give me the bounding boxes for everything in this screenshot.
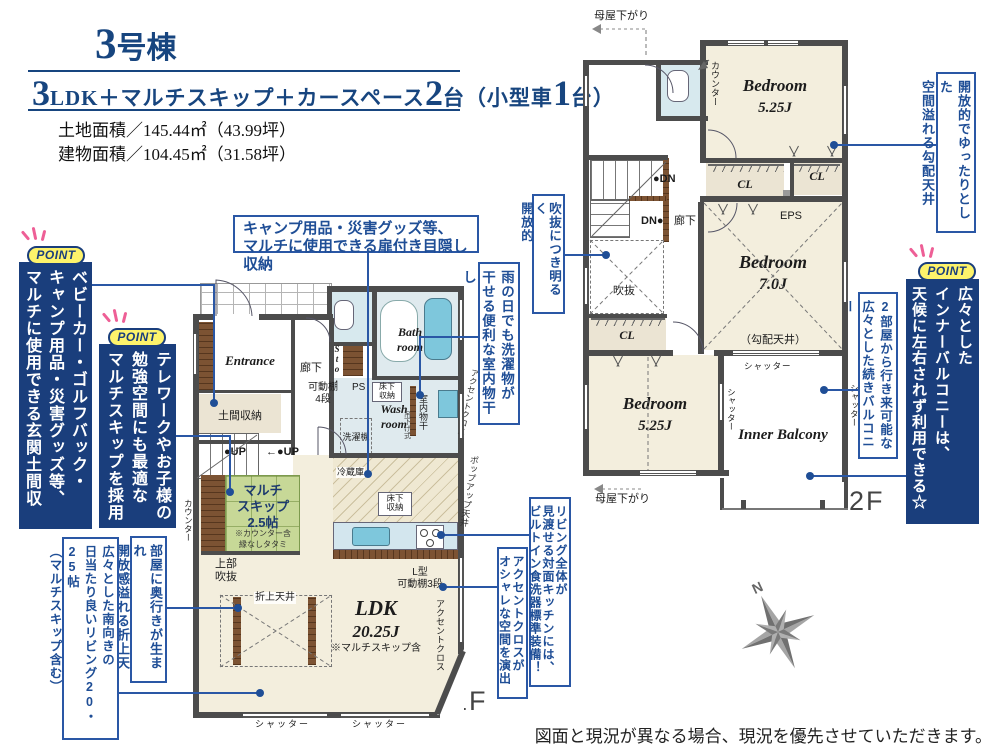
wall [193,390,293,393]
leader-line [824,389,858,391]
wall [656,116,708,121]
hanger-mark [610,356,626,367]
emphasis-rays-icon [22,226,48,246]
label-bedroom3-size: 5.25J [630,417,680,435]
label-cl1: CL [730,177,760,192]
emphasis-rays-icon [910,243,936,263]
label-fridge: 冷蔵庫 [336,467,365,478]
storage-shelf [343,344,363,376]
kitchen-sink [352,527,390,546]
balcony-wall [844,478,848,510]
window [459,558,464,642]
building-number: 3号棟 [95,20,177,69]
multiskip-steps [201,475,225,553]
label-storage: Sto. [331,344,342,384]
leader-line [564,254,606,256]
window [843,262,848,302]
leader-line [441,534,530,536]
balcony-post [820,500,825,509]
label-shutter: シャッター [744,361,792,371]
leader-dot [820,386,828,394]
point-badge: POINT [918,262,976,281]
balcony-wall [720,478,724,510]
leader-line [119,692,260,694]
closet-rail [708,164,784,172]
label-counter-2f: カウンター [709,55,720,111]
wall [656,60,661,118]
leader-line [443,586,498,588]
label-ldk-size: 20.25J [340,622,412,643]
ceiling-post [308,597,316,665]
wall [700,158,848,163]
label-void: 吹抜 [613,285,635,298]
leader-dot [364,470,372,478]
callout-indoor-drying: 雨の日でも洗濯物が 干せる便利な室内物干し [478,262,520,425]
leader-dot [210,399,218,407]
wall [329,453,460,458]
wall [201,551,300,555]
point-box-balcony: 広々とした インナーバルコニーは、 天候に左右されず利用できる☆ [906,279,979,524]
leader-line [213,284,215,403]
room-label-bedroom3: Bedroom [620,394,690,415]
layout-part: 2 [425,72,443,114]
label-movable-shelf: 可動棚 4段 [299,382,347,406]
wall [583,155,668,160]
hanger-mark [786,146,802,157]
leader-dot [234,604,242,612]
wall [700,40,706,162]
label-hallway-1f: 廊下 [293,362,329,375]
label-doma-storage: 土間収納 [210,410,270,423]
emphasis-rays-icon [103,308,129,328]
label-underfloor-kitchen: 床下 収納 [381,494,409,513]
leader-line [810,475,906,477]
disclaimer: 図面と現況が異なる場合、現況を優先させていただきます。 [535,722,992,747]
hanger-mark [745,204,761,215]
callout-coffered: 部屋に奥行きが生まれ 開放感溢れる折上天井 [130,536,167,683]
label-open-above: 上部 吹抜 [208,558,244,585]
window [640,470,696,476]
window [719,384,724,420]
window [733,350,819,356]
label-multiskip: マルチ スキップ 2.5帖 [227,483,299,531]
label-sloped-ceiling: （勾配天井） [736,334,810,347]
point-box-doma: ベビーカー・ゴルフバック・ キャンプ用品・災害グッズ等、 マルチに使用できる玄関… [19,262,92,529]
room-label-bath: Bath room [382,325,438,354]
closet-rail [591,318,665,326]
wall [193,314,199,718]
label-counter-1f: カウンター [183,490,193,550]
window [728,40,764,46]
window [341,713,429,718]
label-multiskip-note2: 縁なしタタミ [228,540,298,550]
wall [700,196,848,202]
room-label-entrance: Entrance [218,353,282,369]
window [193,334,198,374]
callout-void-bright: 吹抜につき明るく 開放的 [532,194,565,314]
shoe-cabinet [198,322,213,390]
hanger-mark [715,204,731,215]
wall [291,318,295,455]
leader-dot [830,141,838,149]
label-hallway-2f: 廊下 [674,215,696,228]
label-moya-top: 母屋下がり [594,10,649,23]
closet-rail [794,164,840,172]
callout-living: 広々とした南向きの 日当たり良いリビング20・25帖 （マルチスキップ含む） [62,537,119,740]
toilet-bowl-1f [334,300,354,330]
layout-part: LDK＋マルチスキップ＋カースペース [50,82,425,112]
callout-tsuzuki-balcony: 2部屋から行き来可能な 広々とした続きバルコニー [858,292,898,459]
label-cl3: CL [612,328,642,343]
leader-line [91,284,214,286]
compass-north-label: N [749,578,765,597]
wall [193,440,295,444]
callout-kitchen: リビング全体が 見渡せる対面キッチンには、 ビルトイン食洗器標準装備！ [529,497,571,687]
land-area: 土地面積／145.44㎡（43.99坪） [58,116,296,141]
leader-dot [256,689,264,697]
divider-bottom [28,109,460,111]
label-eps: EPS [780,210,802,223]
label-bedroom1-size: 5.25J [748,99,802,117]
leader-line [176,435,231,437]
balcony-post [741,500,746,509]
point-badge: POINT [27,246,85,265]
layout-part: 3 [32,72,50,114]
stairs-2f-lower [590,200,630,238]
counter-front-wall [333,550,458,559]
floor2-label: 2F [849,486,885,517]
leader-dot [416,391,424,399]
toilet-bowl-2f [667,70,689,102]
label-accent-cloth-ldk: アクセントクロス [434,598,445,672]
layout-part: 1 [553,72,571,114]
leader-line [419,336,480,338]
window [584,385,589,429]
window [459,300,464,340]
room-label-bedroom2: Bedroom [738,252,808,274]
label-multiskip-note1: ※カウンター含 [228,529,298,539]
leader-dot [806,472,814,480]
window [459,394,464,438]
leader-dot [602,251,610,259]
window [243,713,327,718]
window [843,86,848,134]
window [768,40,798,46]
building-area: 建物面積／104.45㎡（31.58坪） [58,140,296,165]
label-coffered-ceiling: 折上天井 [254,592,296,604]
callout-accent-cloth: アクセントクロスが オシャレな空間を演出 [497,547,528,699]
wash-basin [438,390,458,418]
label-underfloor-wash: 床下 収納 [374,383,400,401]
window [584,268,589,304]
callout-hidden-storage: キャンプ用品・災害グッズ等、 マルチに使用できる扉付き目隠し収納 [233,215,479,253]
compass-icon: N [718,572,838,692]
callout-sloped-ceiling: 開放的でゆったりとした 空間溢れる勾配天井 [936,72,976,233]
wall [327,286,464,292]
leader-line [367,252,369,473]
leader-line [229,435,231,491]
porch-tiles [200,283,332,318]
label-up: ●UP [224,446,246,459]
point-box-multiskip: テレワークやお子様の 勉強空間にも最適な マルチスキップを採用 [99,344,176,528]
room-label-ldk: LDK [340,596,412,622]
room-label-wash: Wash room [366,402,422,431]
label-drying-type: 吊下げ式 [402,408,411,442]
leader-line [166,607,238,609]
window [584,76,589,106]
label-shutter: シャッター [726,383,736,435]
wall [698,202,704,354]
label-moya-bottom: 母屋下がり [595,493,650,506]
leader-dot [439,583,447,591]
label-dn: DN● [641,215,664,228]
room-label-inner-balcony: Inner Balcony [730,426,836,444]
wall [583,60,708,65]
leader-line [419,336,421,393]
label-shutter: シャッター [255,719,310,730]
label-shutter: シャッター [352,719,407,730]
label-ldk-note: ※マルチスキップ含 [330,643,422,655]
void-area [590,240,664,314]
label-bedroom2-size: 7.0J [750,275,796,295]
stair-rail [629,196,667,201]
point-badge: POINT [108,328,166,347]
layout-part: 台（小型車 [443,82,553,112]
hanger-mark [648,356,664,367]
wall [372,286,377,380]
leader-dot [226,488,234,496]
floorplan-flyer: 3号棟 3 LDK＋マルチスキップ＋カースペース 2 台（小型車 1 台） 土地… [0,0,1000,751]
layout-summary: 3 LDK＋マルチスキップ＋カースペース 2 台（小型車 1 台） [32,72,615,114]
label-dn: ●DN [653,173,676,186]
room-label-bedroom1: Bedroom [740,76,810,97]
label-ps: PS [352,382,365,394]
label-up: ←●UP [266,446,299,459]
leader-dot [437,531,445,539]
door-opening [215,314,259,320]
layout-part: 台） [571,82,615,112]
page-title: 3号棟 [95,20,177,69]
label-washer: 洗濯機 [342,432,370,443]
